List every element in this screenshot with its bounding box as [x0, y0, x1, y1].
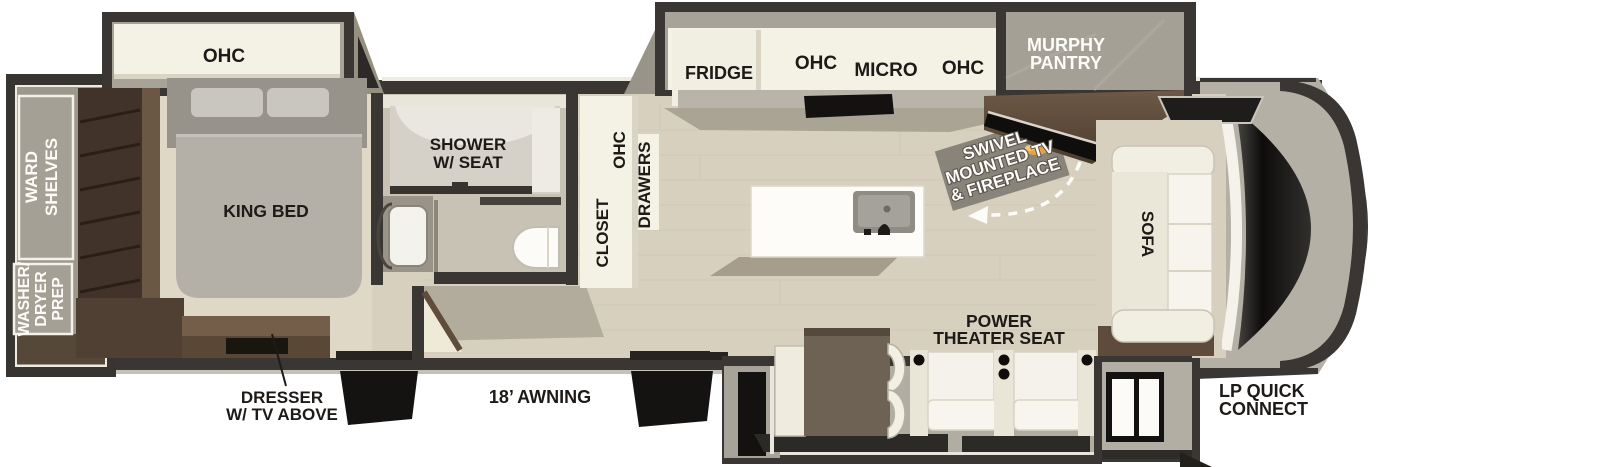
svg-text:LP QUICK: LP QUICK	[1219, 381, 1305, 401]
svg-text:MURPHY: MURPHY	[1027, 35, 1105, 55]
svg-text:CONNECT: CONNECT	[1219, 399, 1308, 419]
svg-text:PREP: PREP	[50, 277, 67, 321]
svg-text:MICRO: MICRO	[854, 60, 917, 81]
svg-text:OHC: OHC	[795, 53, 838, 74]
svg-text:FRIDGE: FRIDGE	[685, 63, 753, 83]
svg-text:SHELVES: SHELVES	[42, 138, 61, 216]
svg-text:W/ SEAT: W/ SEAT	[433, 153, 503, 172]
svg-text:SHOWER: SHOWER	[430, 135, 507, 154]
svg-text:PANTRY: PANTRY	[1030, 53, 1102, 73]
svg-text:OHC: OHC	[203, 46, 246, 67]
svg-text:DRAWERS: DRAWERS	[635, 142, 654, 229]
svg-text:W/ TV ABOVE: W/ TV ABOVE	[226, 405, 338, 424]
svg-text:OHC: OHC	[942, 58, 985, 79]
svg-text:SOFA: SOFA	[1138, 211, 1157, 257]
svg-text:18’ AWNING: 18’ AWNING	[489, 387, 591, 407]
svg-text:KING BED: KING BED	[223, 201, 309, 221]
svg-text:CLOSET: CLOSET	[593, 198, 612, 268]
svg-text:THEATER SEAT: THEATER SEAT	[933, 328, 1065, 348]
svg-text:WASHER/: WASHER/	[16, 261, 33, 336]
svg-text:WARD: WARD	[22, 151, 41, 203]
svg-text:DRYER: DRYER	[33, 271, 50, 327]
svg-text:OHC: OHC	[610, 131, 629, 169]
